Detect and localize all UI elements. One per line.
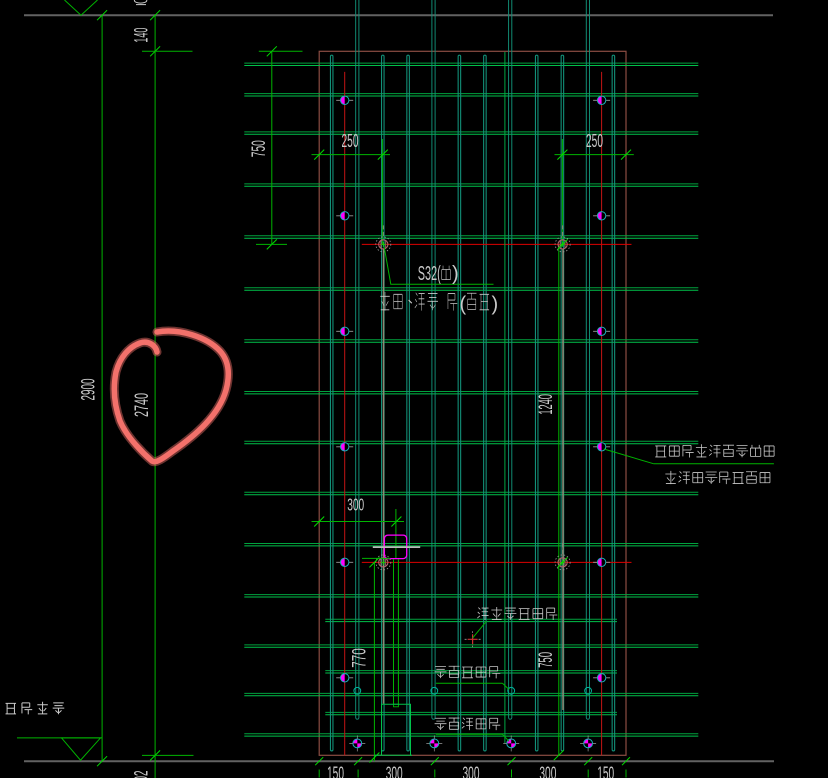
svg-text:02: 02 [131,771,153,778]
svg-text:150: 150 [597,763,614,778]
svg-text:2900: 2900 [78,378,100,400]
svg-text:300: 300 [463,763,480,778]
svg-text:250: 250 [342,130,359,151]
svg-text:): ) [492,294,499,316]
svg-text:1240: 1240 [535,394,557,415]
svg-text:S32(: S32( [418,263,441,285]
svg-text:140: 140 [131,28,153,43]
svg-text:2740: 2740 [131,393,153,417]
svg-text:300: 300 [386,763,403,778]
svg-text:): ) [452,263,459,285]
svg-text:770: 770 [348,648,370,668]
svg-text:250: 250 [586,130,603,151]
svg-text:300: 300 [347,495,364,515]
svg-text:150: 150 [327,763,344,778]
svg-text:300: 300 [539,763,556,778]
svg-text:750: 750 [535,652,557,668]
svg-text:(: ( [460,294,467,316]
svg-text:750: 750 [248,140,270,157]
